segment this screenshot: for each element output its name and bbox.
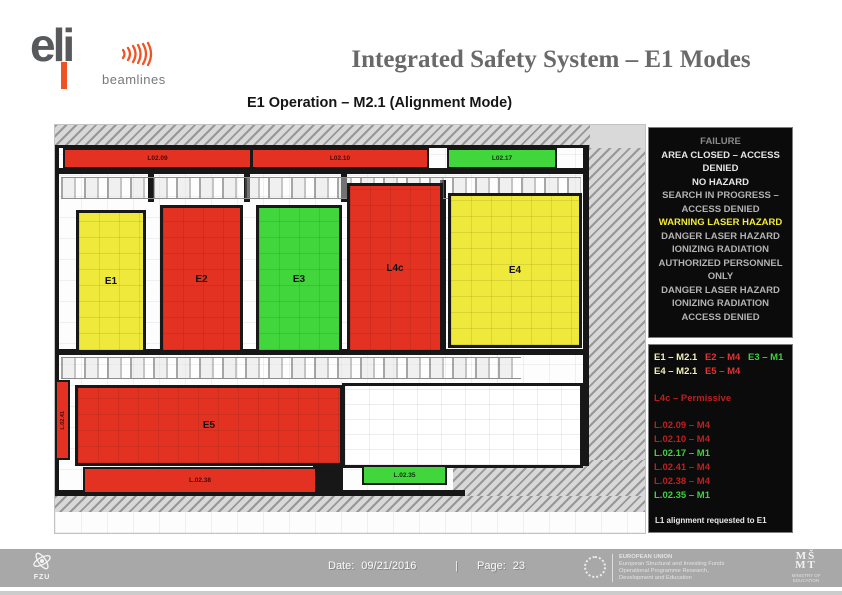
legend-entry-L02-17: L.02.17 – M1 [654,447,787,461]
equipment-strip-mid [61,357,521,379]
page-title: Integrated Safety System – E1 Modes [260,46,842,74]
legend-entry-E5: E5 – M4 [705,366,740,377]
footer-date-label: Date: [328,560,354,572]
status-line: AUTHORIZED PERSONNEL ONLY [655,257,786,284]
fzu-label: FZU [26,574,58,581]
corridor-L02-41-label: L.02.41 [60,411,66,430]
fzu-logo: FZU [26,551,58,581]
corridor-L02-10-label: L02.10 [330,155,350,162]
status-line: IONIZING RADIATION [655,297,786,311]
footer-date-value: 09/21/2016 [361,560,416,572]
legend-entry-E2: E2 – M4 [705,352,740,363]
corridor-L02-35-label: L.02.35 [393,472,415,479]
legend-entry-L02-41: L.02.41 – M4 [654,461,787,475]
status-line: SEARCH IN PROGRESS – ACCESS DENIED [655,189,786,216]
corridor-L02-17-label: L02.17 [492,155,512,162]
footer-bar: FZU Date:09/21/2016 | Page:23 EUROPEAN U… [0,549,842,587]
footer-page-value: 23 [513,560,525,572]
legend-entry-L02-38: L.02.38 – M4 [654,475,787,489]
footer-bottom-strip [0,591,842,595]
eli-logo-orange-bar [61,62,67,89]
room-E3: E3 [256,205,342,353]
eu-flag-icon [584,556,606,578]
eu-text-line: Operational Programme Research, [619,568,724,575]
wall-right-vertical [583,148,589,466]
footer-date: Date:09/21/2016 [328,560,423,572]
eli-logo: eli [30,36,102,98]
legend-entry-L02-35: L.02.35 – M1 [654,489,787,503]
room-E5: E5 [75,385,343,466]
floor-plan: L02.09 L02.10 L02.17 E1 E2 E3 L4c E4 E5 … [55,125,645,533]
eu-text-line: Development and Education [619,575,724,582]
status-line: AREA CLOSED – ACCESS DENIED [655,149,786,176]
footer-page: Page:23 [477,560,532,572]
corridor-L02-38-label: L.02.38 [189,477,211,484]
status-panel: FAILURE AREA CLOSED – ACCESS DENIED NO H… [648,127,793,338]
corridor-L02-35: L.02.35 [362,465,447,485]
room-E2-label: E2 [195,274,207,285]
legend-entry-L02-09: L.02.09 – M4 [654,419,787,433]
msmt-logo: MŠ MT MINISTRY OF EDUCATION [778,552,834,583]
eu-text-line: European Structural and Investing Funds [619,561,724,568]
status-line: NO HAZARD [655,176,786,190]
msmt-caption: MINISTRY OF EDUCATION [778,573,834,583]
msmt-logo-bottom: MT [778,561,834,570]
room-E1-label: E1 [105,276,117,287]
status-line: ACCESS DENIED [655,311,786,325]
room-L4c-label: L4c [386,263,403,274]
corridor-L02-17: L02.17 [447,148,557,169]
legend-entry-E3: E3 – M1 [748,352,783,363]
legend-note: L1 alignment requested to E1 [655,516,767,525]
footer-page-label: Page: [477,560,506,572]
legend-entry-E4: E4 – M2.1 [654,366,697,377]
hatch-right-column [589,148,645,512]
footer-separator: | [455,560,458,572]
mode-legend-panel: E1 – M2.1 E2 – M4 E3 – M1 E4 – M2.1 E5 –… [648,344,793,533]
eu-text-line: EUROPEAN UNION [619,554,724,561]
corridor-L02-10: L02.10 [251,148,429,169]
gray-top-right [590,125,645,148]
hatch-bottom-band [55,496,645,512]
slide-subtitle: E1 Operation – M2.1 (Alignment Mode) [247,95,512,111]
corridor-L02-38: L.02.38 [83,467,317,494]
room-E3-label: E3 [293,274,305,285]
corridor-L02-09: L02.09 [63,148,252,169]
room-E5-label: E5 [203,420,215,431]
beamlines-label: beamlines [102,72,166,87]
fzu-atom-icon [31,551,53,571]
room-uncolored [342,383,583,468]
status-line: WARNING LASER HAZARD [655,216,786,230]
legend-entry-L4c: L4c – Permissive [654,392,787,406]
room-E1: E1 [76,210,146,353]
room-E4-label: E4 [509,265,521,276]
corridor-L02-09-label: L02.09 [147,155,167,162]
legend-entry-L02-10: L.02.10 – M4 [654,433,787,447]
corridor-L02-41: L.02.41 [55,380,70,460]
laser-beams-icon [118,40,154,68]
status-line: DANGER LASER HAZARD [655,284,786,298]
status-line: DANGER LASER HAZARD [655,230,786,244]
legend-row-2: E4 – M2.1 E5 – M4 [654,365,787,379]
room-E4: E4 [448,193,582,348]
status-line: FAILURE [655,135,786,149]
eu-funding-text: EUROPEAN UNION European Structural and I… [612,554,724,582]
legend-row-1: E1 – M2.1 E2 – M4 E3 – M1 [654,351,787,365]
room-L4c: L4c [347,183,443,353]
status-line: IONIZING RADIATION [655,243,786,257]
legend-entry-E1: E1 – M2.1 [654,352,697,363]
room-E2: E2 [160,205,243,353]
